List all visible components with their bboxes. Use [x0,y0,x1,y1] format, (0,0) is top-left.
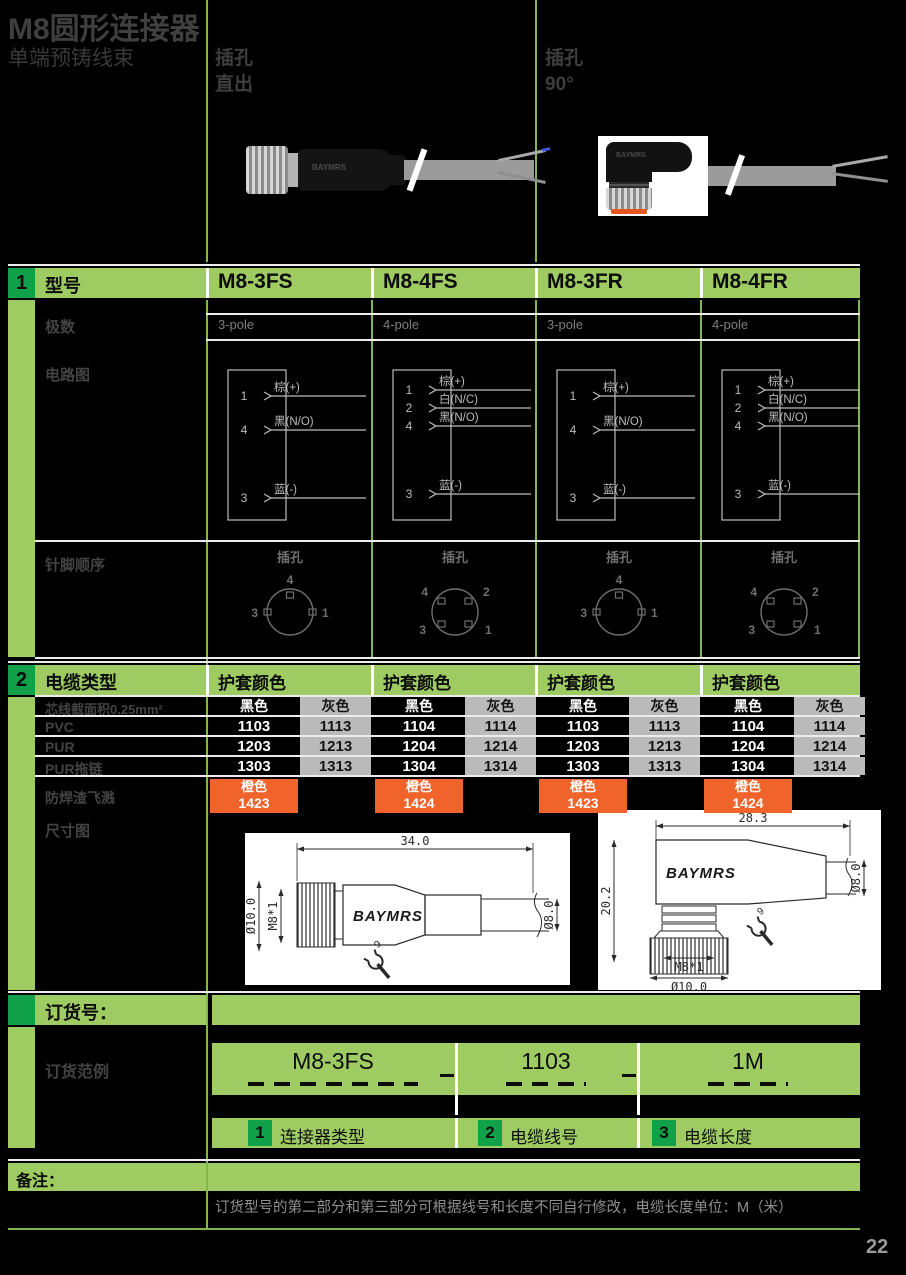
bottom-rule [8,1228,860,1230]
cable-band: 电缆类型 护套颜色护套颜色护套颜色护套颜色 [35,665,860,695]
top-divider-1 [206,0,208,262]
svg-text:4: 4 [421,585,428,599]
pin-diagram: 插孔431 [208,546,373,656]
example-divider [637,1043,640,1115]
angled-elbow [606,166,652,182]
angled-knurled-nut [606,188,652,210]
svg-text:BAYMRS: BAYMRS [353,908,423,925]
angled-wire-1 [832,155,888,168]
legend-badge: 3 [652,1120,676,1146]
connector-photo-angled: BAYMRS [598,136,708,216]
band-sep [700,268,703,298]
section-1-side-strip [8,300,35,657]
variant-straight-line1: 插孔 [215,46,253,72]
rule [8,1159,860,1161]
jacket-gray-header: 灰色 [794,697,865,715]
variant-angled-line1: 插孔 [545,46,583,72]
spatter-code: 1424 [403,795,434,811]
section-3-side-strip [8,1027,35,1148]
cable-code-black: 1303 [539,757,627,775]
svg-text:1: 1 [735,383,742,397]
order-example-part: 1M [658,1048,838,1075]
svg-text:黑(N/O): 黑(N/O) [439,411,479,424]
svg-text:Ø8.0: Ø8.0 [542,901,556,930]
rule [206,339,860,341]
rule [206,313,860,315]
band-sep [535,268,538,298]
order-example-underline [708,1082,788,1086]
wire-tip-blue [542,147,550,152]
svg-text:1: 1 [406,383,413,397]
jacket-black-header: 黑色 [539,697,627,715]
angled-cable [708,166,836,186]
svg-text:蓝(-): 蓝(-) [603,483,626,496]
svg-text:3: 3 [735,487,742,501]
svg-text:1: 1 [651,606,658,620]
svg-text:棕(+): 棕(+) [439,374,465,388]
dimension-drawing-straight: 34.0Ø10.0M8*1BAYMRSØ8.09 [245,833,570,985]
svg-text:插孔: 插孔 [771,550,797,565]
spatter-color-name: 橙色 [735,780,761,795]
svg-text:1: 1 [241,389,248,403]
legend-badge: 1 [248,1120,272,1146]
svg-text:M8*1: M8*1 [675,960,704,974]
spatter-color-name: 橙色 [241,780,267,795]
svg-text:Ø8.0: Ø8.0 [849,864,863,893]
jacket-gray-header: 灰色 [629,697,700,715]
rule [35,657,860,659]
angled-wire-2 [832,172,888,183]
band-sep [206,268,209,298]
spatter-cell: 橙色1423 [210,779,298,813]
model-cell: M8-4FS [383,270,458,294]
cable-code-gray: 1114 [465,717,536,735]
grid-vertical-note [206,1163,208,1228]
svg-text:黑(N/O): 黑(N/O) [768,411,808,424]
variant-header-angled: 插孔 90° [545,46,583,97]
knurled-nut [246,146,288,194]
rule [8,991,860,993]
connector-body: BAYMRS [298,149,394,191]
cable-code-black: 1104 [375,717,463,735]
svg-text:1: 1 [322,606,329,620]
cable-code-black: 1103 [539,717,627,735]
cable-code-black: 1204 [704,737,792,755]
jacket-header: 护套颜色 [712,669,780,694]
order-band-label: 订货号： [45,999,117,1025]
legend-badge: 2 [478,1120,502,1146]
svg-text:4: 4 [406,419,413,433]
svg-text:3: 3 [251,606,258,620]
cable-code-gray: 1313 [629,757,700,775]
spatter-color-name: 橙色 [570,780,596,795]
order-example-separator [440,1074,454,1077]
cable-code-gray: 1114 [794,717,865,735]
order-example-underline [248,1082,418,1086]
svg-text:黑(N/O): 黑(N/O) [274,415,314,428]
rule [35,715,860,717]
jacket-gray-header: 灰色 [465,697,536,715]
svg-text:4: 4 [570,423,577,437]
spatter-cell: 橙色1424 [375,779,463,813]
svg-text:插孔: 插孔 [606,550,632,565]
cable-code-black: 1203 [210,737,298,755]
top-divider-2 [535,0,537,262]
section-2-side-strip [8,697,35,990]
cable-code-black: 1303 [210,757,298,775]
rule [35,735,860,737]
pin-order-label: 针脚顺序 [45,554,105,575]
rule [35,775,860,777]
svg-text:Ø10.0: Ø10.0 [245,898,258,934]
cable-code-black: 1304 [704,757,792,775]
svg-text:3: 3 [406,487,413,501]
jacket-black-header: 黑色 [704,697,792,715]
poles-value: 3-pole [547,317,583,332]
pin-diagram: 插孔431 [537,546,702,656]
note-text: 订货型号的第二部分和第三部分可根据线号和长度不同自行修改，电缆长度单位：M（米） [215,1196,845,1217]
svg-text:3: 3 [748,623,755,637]
svg-text:34.0: 34.0 [401,834,430,848]
spatter-label: 防焊渣飞溅 [45,788,115,808]
circuit-diagram: 1棕(+)2白(N/C)4黑(N/O)3蓝(-) [702,354,867,540]
spatter-cell: 橙色1423 [539,779,627,813]
cable-code-gray: 1314 [794,757,865,775]
svg-text:1: 1 [485,623,492,637]
svg-text:20.2: 20.2 [599,887,613,916]
rule [8,264,860,266]
section-badge-1: 1 [8,268,35,298]
model-cell: M8-3FR [547,270,623,294]
circuit-diagram: 1棕(+)4黑(N/O)3蓝(-) [208,354,373,540]
model-cells: M8-3FSM8-4FSM8-3FRM8-4FR [35,268,860,298]
dimension-label: 尺寸图 [45,820,90,841]
svg-text:2: 2 [812,585,819,599]
jacket-header: 护套颜色 [218,669,286,694]
wrench-icon: 9 [742,905,784,949]
grid-vertical-order [206,995,208,1148]
svg-text:Ø10.0: Ø10.0 [671,980,707,990]
poles-value: 4-pole [383,317,419,332]
jacket-black-header: 黑色 [375,697,463,715]
svg-text:1: 1 [814,623,821,637]
cable-code-gray: 1113 [300,717,371,735]
band-sep [206,665,209,695]
order-example-label: 订货范例 [45,1058,109,1082]
pin-diagram: 插孔4231 [702,546,867,656]
cable-code-black: 1104 [704,717,792,735]
legend-label: 电缆线号 [510,1123,578,1148]
legend-label: 电缆长度 [684,1123,752,1148]
rule [35,695,860,697]
svg-text:M8*1: M8*1 [266,902,280,931]
svg-text:4: 4 [750,585,757,599]
svg-text:2: 2 [483,585,490,599]
connector-photo-straight: BAYMRS [246,138,546,208]
cable-code-black: 1203 [539,737,627,755]
cable-code-black: 1103 [210,717,298,735]
model-cell: M8-3FS [218,270,293,294]
svg-text:白(N/C): 白(N/C) [768,392,807,406]
band-sep [371,665,374,695]
cable-code-black: 1304 [375,757,463,775]
jacket-gray-header: 灰色 [300,697,371,715]
cable-code-gray: 1113 [629,717,700,735]
collar [288,153,298,187]
legend-label: 连接器类型 [280,1123,365,1148]
svg-text:2: 2 [735,401,742,415]
svg-text:4: 4 [241,423,248,437]
dimension-drawing-angled: 28.320.2BAYMRSØ8.0M8*1Ø10.09 [598,810,881,990]
svg-text:3: 3 [241,491,248,505]
svg-text:黑(N/O): 黑(N/O) [603,415,643,428]
svg-text:插孔: 插孔 [277,550,303,565]
svg-text:4: 4 [287,573,294,587]
circuit-label: 电路图 [45,364,90,385]
poles-value: 3-pole [218,317,254,332]
svg-text:3: 3 [580,606,587,620]
page-number: 22 [866,1236,888,1259]
svg-text:28.3: 28.3 [739,811,768,825]
rule [8,661,860,663]
variant-header-straight: 插孔 直出 [215,46,253,97]
svg-text:白(N/C): 白(N/C) [439,392,478,406]
cable-code-gray: 1214 [465,737,536,755]
band-sep [700,665,703,695]
svg-text:蓝(-): 蓝(-) [274,483,297,496]
note-band: 备注： [8,1163,860,1191]
cable-code-gray: 1313 [300,757,371,775]
jacket-black-header: 黑色 [210,697,298,715]
legend-divider [455,1118,458,1148]
cable-code-gray: 1314 [465,757,536,775]
spatter-color-name: 橙色 [406,780,432,795]
spatter-code: 1423 [238,795,269,811]
order-example-part: M8-3FS [243,1048,423,1075]
order-example-underline [506,1082,586,1086]
note-band-label: 备注： [16,1167,64,1191]
order-example-separator [622,1074,636,1077]
svg-text:棕(+): 棕(+) [768,374,794,388]
svg-text:3: 3 [419,623,426,637]
svg-text:3: 3 [570,491,577,505]
cable-code-gray: 1214 [794,737,865,755]
section-badge-2: 2 [8,665,35,695]
circuit-diagram: 1棕(+)4黑(N/O)3蓝(-) [537,354,702,540]
svg-text:1: 1 [570,389,577,403]
svg-text:4: 4 [735,419,742,433]
jacket-header: 护套颜色 [547,669,615,694]
poles-label: 极数 [45,316,75,337]
page-subtitle: 单端预铸线束 [8,42,134,72]
cable-row-label: PVC [45,719,74,735]
spatter-code: 1424 [732,795,763,811]
variant-straight-line2: 直出 [215,72,253,98]
spatter-cell: 橙色1424 [704,779,792,813]
section-badge-3 [8,995,35,1025]
svg-text:9: 9 [755,905,767,917]
svg-text:棕(+): 棕(+) [274,380,300,394]
jacket-headers: 护套颜色护套颜色护套颜色护套颜色 [35,665,860,695]
jacket-header: 护套颜色 [383,669,451,694]
catalog-page: M8圆形连接器 单端预铸线束 插孔 直出 插孔 90° BAYMRS BAYMR… [0,0,906,1275]
rule [35,755,860,757]
poles-value: 4-pole [712,317,748,332]
model-cell: M8-4FR [712,270,788,294]
band-sep [535,665,538,695]
cable-code-gray: 1213 [629,737,700,755]
cable-row-label: PUR [45,739,75,755]
legend-divider [637,1118,640,1148]
spatter-code: 1423 [567,795,598,811]
model-band: 型号 M8-3FSM8-4FSM8-3FRM8-4FR [35,268,860,298]
pin-diagram: 插孔4231 [373,546,538,656]
cable-code-gray: 1213 [300,737,371,755]
band-sep [371,268,374,298]
angled-orange-face [611,209,647,214]
svg-text:BAYMRS: BAYMRS [666,865,736,882]
svg-text:蓝(-): 蓝(-) [439,479,462,492]
svg-text:棕(+): 棕(+) [603,380,629,394]
svg-text:蓝(-): 蓝(-) [768,479,791,492]
cable-code-black: 1204 [375,737,463,755]
svg-text:插孔: 插孔 [442,550,468,565]
variant-angled-line2: 90° [545,72,583,98]
rule [35,540,860,542]
order-band-left: 订货号： [35,995,206,1025]
circuit-diagram: 1棕(+)2白(N/C)4黑(N/O)3蓝(-) [373,354,538,540]
svg-text:4: 4 [616,573,623,587]
order-band-right [212,995,860,1025]
svg-text:2: 2 [406,401,413,415]
order-example-part: 1103 [456,1048,636,1075]
